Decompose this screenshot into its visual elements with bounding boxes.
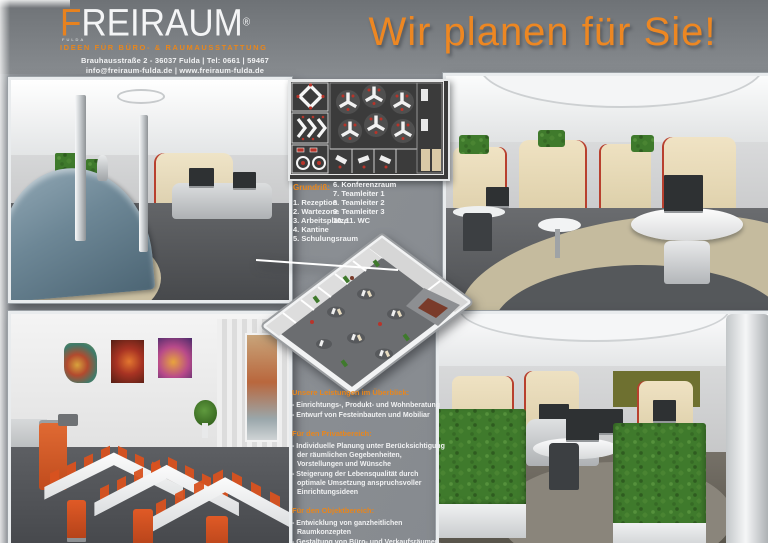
column bbox=[139, 115, 148, 251]
office-chair bbox=[549, 443, 579, 491]
services-overview-title: Unsere Leistungen im Überblick: bbox=[292, 388, 448, 397]
planter-box-white bbox=[613, 523, 707, 543]
chair-front bbox=[206, 516, 228, 543]
legend-title: Grundriß: bbox=[293, 183, 330, 192]
workstation-cluster bbox=[390, 90, 414, 114]
services-private-title: Für den Privatbereich: bbox=[292, 429, 448, 438]
service-item: - Entwurf von Festeinbauten und Mobiliar bbox=[292, 411, 448, 420]
iso-cluster bbox=[347, 333, 365, 344]
floorplan-top-view-drawing bbox=[290, 81, 444, 175]
logo-city: FULDA bbox=[62, 37, 85, 42]
plants-on-partition bbox=[538, 130, 564, 147]
iso-cluster bbox=[327, 307, 345, 318]
monitor bbox=[233, 172, 255, 189]
service-item: - Steigerung der Lebensqualität durch op… bbox=[292, 470, 448, 497]
floorplan-top-view bbox=[288, 79, 450, 181]
plants-on-partition bbox=[631, 135, 654, 152]
legend-room: 8. Teamleiter 2 bbox=[333, 198, 396, 207]
column-large bbox=[726, 314, 768, 543]
workstation-cluster bbox=[336, 90, 360, 114]
desk-top-white bbox=[631, 208, 743, 241]
iso-cluster bbox=[387, 309, 405, 320]
workstation-cluster bbox=[338, 119, 362, 143]
legend-room: 10.,11. WC bbox=[333, 216, 396, 225]
monitor bbox=[566, 409, 599, 442]
service-item: - Gestaltung von Büro- und Verkaufsräume… bbox=[292, 538, 448, 543]
address-block: Brauhausstraße 2 - 36037 Fulda | Tel: 06… bbox=[60, 56, 290, 76]
service-item: - Entwicklung von ganzheitlichen Raumkon… bbox=[292, 519, 448, 537]
render-plant-office bbox=[436, 311, 768, 543]
workstation-cluster bbox=[391, 119, 415, 143]
reception-scene bbox=[11, 80, 289, 300]
side-table bbox=[538, 218, 581, 232]
iso-cluster bbox=[375, 349, 393, 360]
chair-front bbox=[133, 509, 152, 543]
legend-room: 9. Teamleiter 3 bbox=[333, 207, 396, 216]
iso-cluster bbox=[357, 289, 375, 300]
wall-art bbox=[111, 340, 144, 383]
plant-wall-divider bbox=[613, 423, 707, 532]
address-line1: Brauhausstraße 2 - 36037 Fulda | Tel: 06… bbox=[60, 56, 290, 66]
logo: FREIRAUM® FULDA IDEEN FÜR BÜRO- & RAUMAU… bbox=[60, 4, 290, 76]
plants-on-partition bbox=[459, 135, 489, 154]
monitor bbox=[189, 168, 214, 188]
logo-tagline: IDEEN FÜR BÜRO- & RAUMAUSSTATTUNG bbox=[60, 43, 290, 52]
floorplan-isometric-drawing bbox=[256, 226, 478, 398]
logo-wordmark: FREIRAUM® bbox=[60, 4, 290, 43]
monitor bbox=[486, 187, 509, 208]
logo-rest: REIRAUM bbox=[81, 2, 242, 44]
legend-rooms-right: 6. Konferenzraum 7. Teamleiter 1 8. Team… bbox=[333, 180, 396, 225]
open-office-scene bbox=[446, 76, 768, 312]
workstation-cluster bbox=[364, 113, 388, 137]
service-item: - Einrichtungs-, Produkt- und Wohnberatu… bbox=[292, 401, 448, 410]
render-open-office bbox=[443, 73, 768, 315]
service-item: - Individuelle Planung unter Berücksicht… bbox=[292, 442, 448, 469]
spacer bbox=[292, 421, 448, 429]
spacer bbox=[292, 498, 448, 506]
services-text: Unsere Leistungen im Überblick: - Einric… bbox=[292, 388, 448, 543]
mannequin bbox=[97, 155, 108, 181]
curved-partition-cream bbox=[519, 140, 585, 216]
wall-art bbox=[158, 338, 191, 378]
ceiling-light bbox=[117, 89, 165, 104]
column bbox=[75, 95, 86, 240]
training-room-scene bbox=[11, 314, 289, 543]
desk-cabinet bbox=[664, 241, 710, 283]
render-reception bbox=[8, 77, 292, 303]
plant-wall-divider bbox=[439, 409, 526, 509]
wall-art bbox=[64, 343, 97, 383]
curved-partition-cream bbox=[601, 144, 651, 210]
workstation-cluster bbox=[362, 84, 386, 108]
floorplan-isometric-view bbox=[256, 226, 478, 398]
chair-front bbox=[67, 500, 86, 538]
legend-room: 7. Teamleiter 1 bbox=[333, 189, 396, 198]
planter-box-white bbox=[439, 504, 526, 537]
topiary-plant bbox=[194, 400, 216, 426]
registered-mark: ® bbox=[243, 17, 250, 29]
monitor bbox=[664, 175, 704, 212]
services-object-title: Für den Objektbereich: bbox=[292, 506, 448, 515]
projector bbox=[58, 414, 77, 426]
address-line2: info@freiraum-fulda.de | www.freiraum-fu… bbox=[60, 66, 290, 76]
table-leg bbox=[555, 229, 560, 257]
render-training-room bbox=[8, 311, 292, 543]
poster: FREIRAUM® FULDA IDEEN FÜR BÜRO- & RAUMAU… bbox=[0, 0, 768, 543]
plant-office-scene bbox=[439, 314, 768, 543]
desk-cabinet bbox=[172, 183, 272, 218]
headline: Wir planen für Sie! bbox=[330, 10, 755, 55]
monitor bbox=[653, 400, 676, 423]
legend-room: 6. Konferenzraum bbox=[333, 180, 396, 189]
iso-cluster bbox=[316, 339, 332, 349]
plant-pot bbox=[202, 423, 209, 437]
